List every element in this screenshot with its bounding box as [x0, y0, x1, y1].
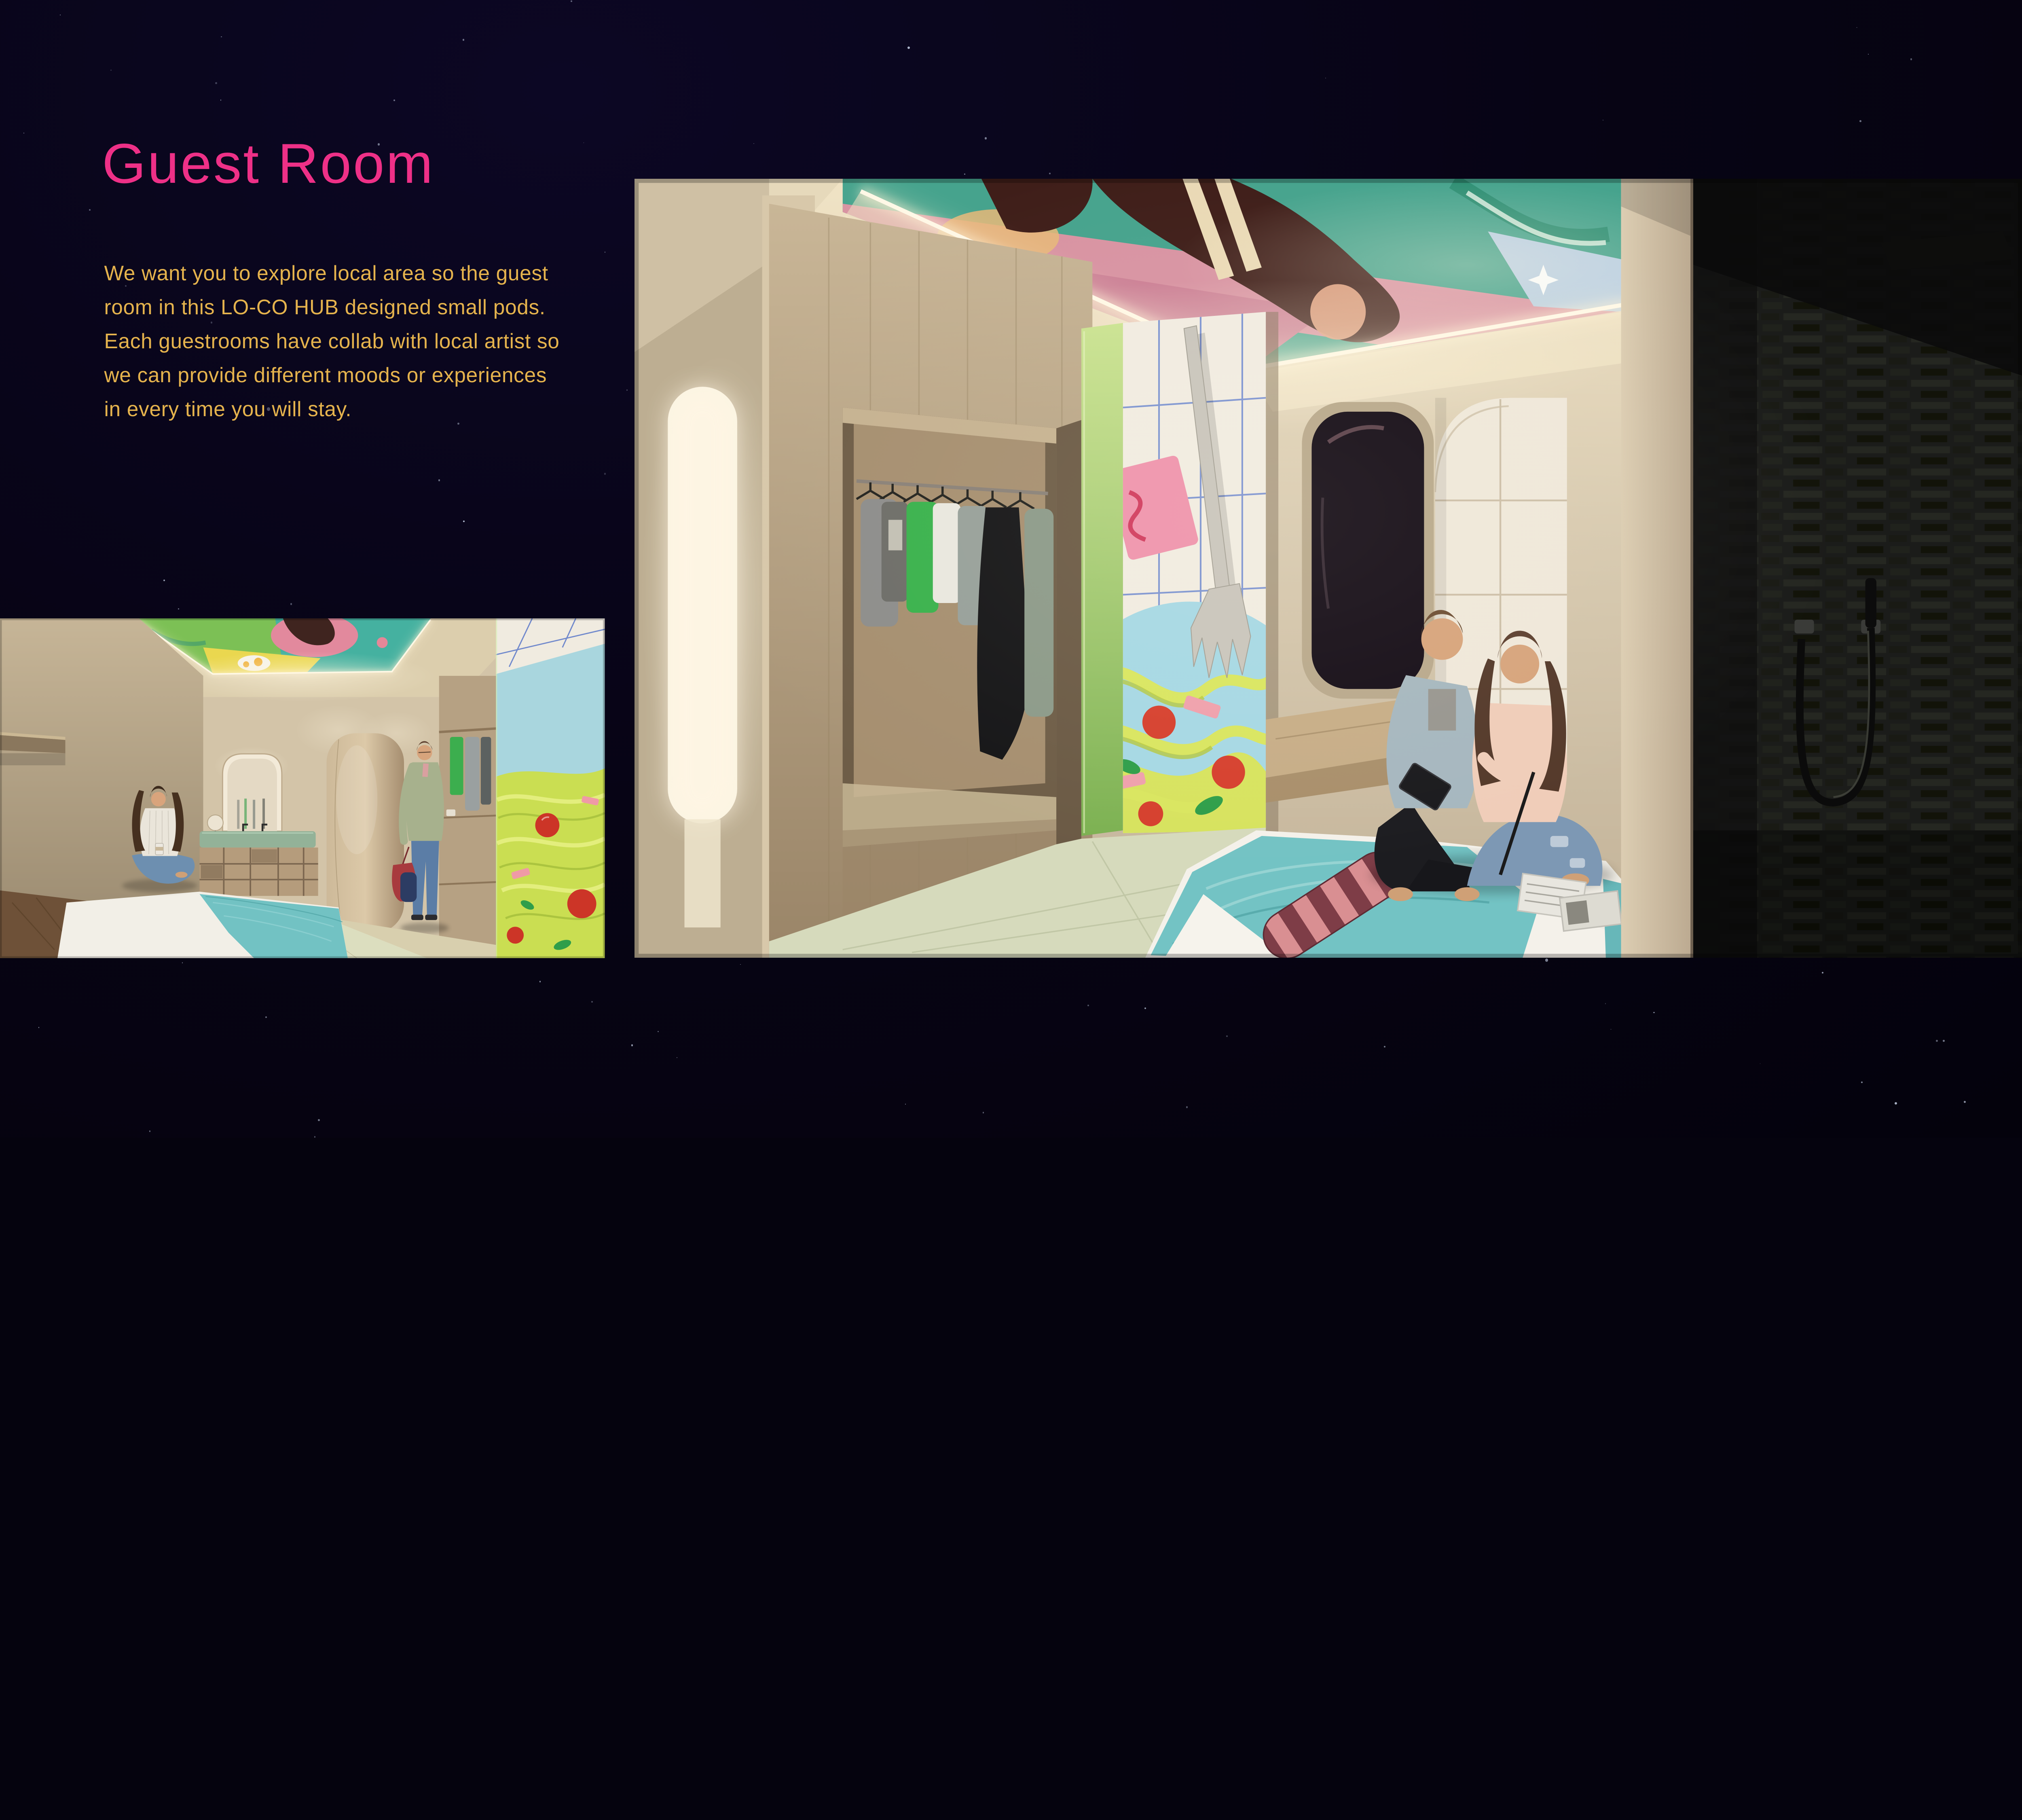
star — [215, 82, 217, 84]
body-line: we can provide different moods or experi… — [104, 358, 560, 392]
star — [178, 608, 179, 609]
star — [658, 1031, 659, 1032]
star — [1859, 120, 1861, 122]
star — [905, 1104, 906, 1105]
star — [571, 0, 573, 2]
star — [539, 981, 541, 982]
star — [753, 143, 754, 144]
star — [393, 99, 395, 101]
star — [1610, 1029, 1612, 1030]
star — [318, 1119, 320, 1121]
star — [584, 142, 584, 143]
body-line: in every time you will stay. — [104, 392, 560, 426]
star — [23, 133, 24, 133]
star — [1186, 1106, 1188, 1108]
star — [221, 36, 222, 38]
star — [740, 964, 741, 965]
star — [1226, 1035, 1228, 1037]
star — [463, 521, 465, 522]
body-line: We want you to explore local area so the… — [104, 256, 560, 290]
star — [985, 137, 987, 139]
star — [591, 1001, 593, 1003]
star — [626, 389, 628, 391]
star — [110, 70, 112, 71]
star — [1856, 27, 1857, 28]
star — [1325, 78, 1326, 79]
star — [1603, 120, 1603, 121]
star — [1868, 54, 1869, 55]
star — [907, 47, 910, 49]
star — [182, 962, 183, 963]
star — [631, 1044, 633, 1046]
body-text: We want you to explore local area so the… — [104, 256, 560, 426]
star — [38, 1027, 39, 1028]
green-counter — [200, 831, 316, 847]
star — [1943, 1040, 1945, 1042]
slide: Guest Room We want you to explore local … — [0, 0, 2022, 1138]
star — [1144, 1007, 1146, 1009]
page-title: Guest Room — [102, 131, 435, 196]
star — [1936, 1040, 1938, 1042]
star — [60, 15, 61, 15]
curved-partition — [327, 733, 404, 933]
star — [1760, 1063, 1761, 1064]
star — [1861, 1081, 1863, 1083]
star — [89, 209, 91, 211]
star — [1049, 173, 1051, 174]
star — [1605, 1003, 1606, 1004]
star — [163, 580, 165, 581]
ramen-mural-panel — [496, 618, 605, 958]
star — [149, 1130, 151, 1132]
star — [604, 473, 606, 474]
hanging-clothes — [450, 737, 463, 795]
guest-room-render-secondary — [0, 618, 605, 958]
star — [438, 479, 440, 481]
star — [1910, 58, 1912, 60]
guest-room-render-main — [635, 179, 2022, 958]
body-line: room in this LO-CO HUB designed small po… — [104, 290, 560, 324]
star — [265, 1016, 267, 1018]
star — [1964, 1101, 1966, 1103]
star — [983, 1112, 984, 1113]
star — [290, 603, 292, 605]
star — [1087, 1005, 1089, 1006]
star — [463, 39, 465, 41]
star — [1653, 1012, 1655, 1014]
star — [605, 252, 605, 252]
round-mirror — [207, 815, 223, 830]
star — [314, 1136, 315, 1137]
star — [964, 174, 965, 175]
hand-shower-handle — [1865, 578, 1876, 628]
star — [677, 1057, 677, 1058]
star — [1545, 959, 1548, 962]
body-line: Each guestrooms have collab with local a… — [104, 324, 560, 358]
star — [220, 99, 222, 101]
star — [1384, 1046, 1385, 1048]
star — [1822, 972, 1823, 973]
closet-shelving — [439, 676, 497, 958]
star — [1895, 1102, 1897, 1105]
